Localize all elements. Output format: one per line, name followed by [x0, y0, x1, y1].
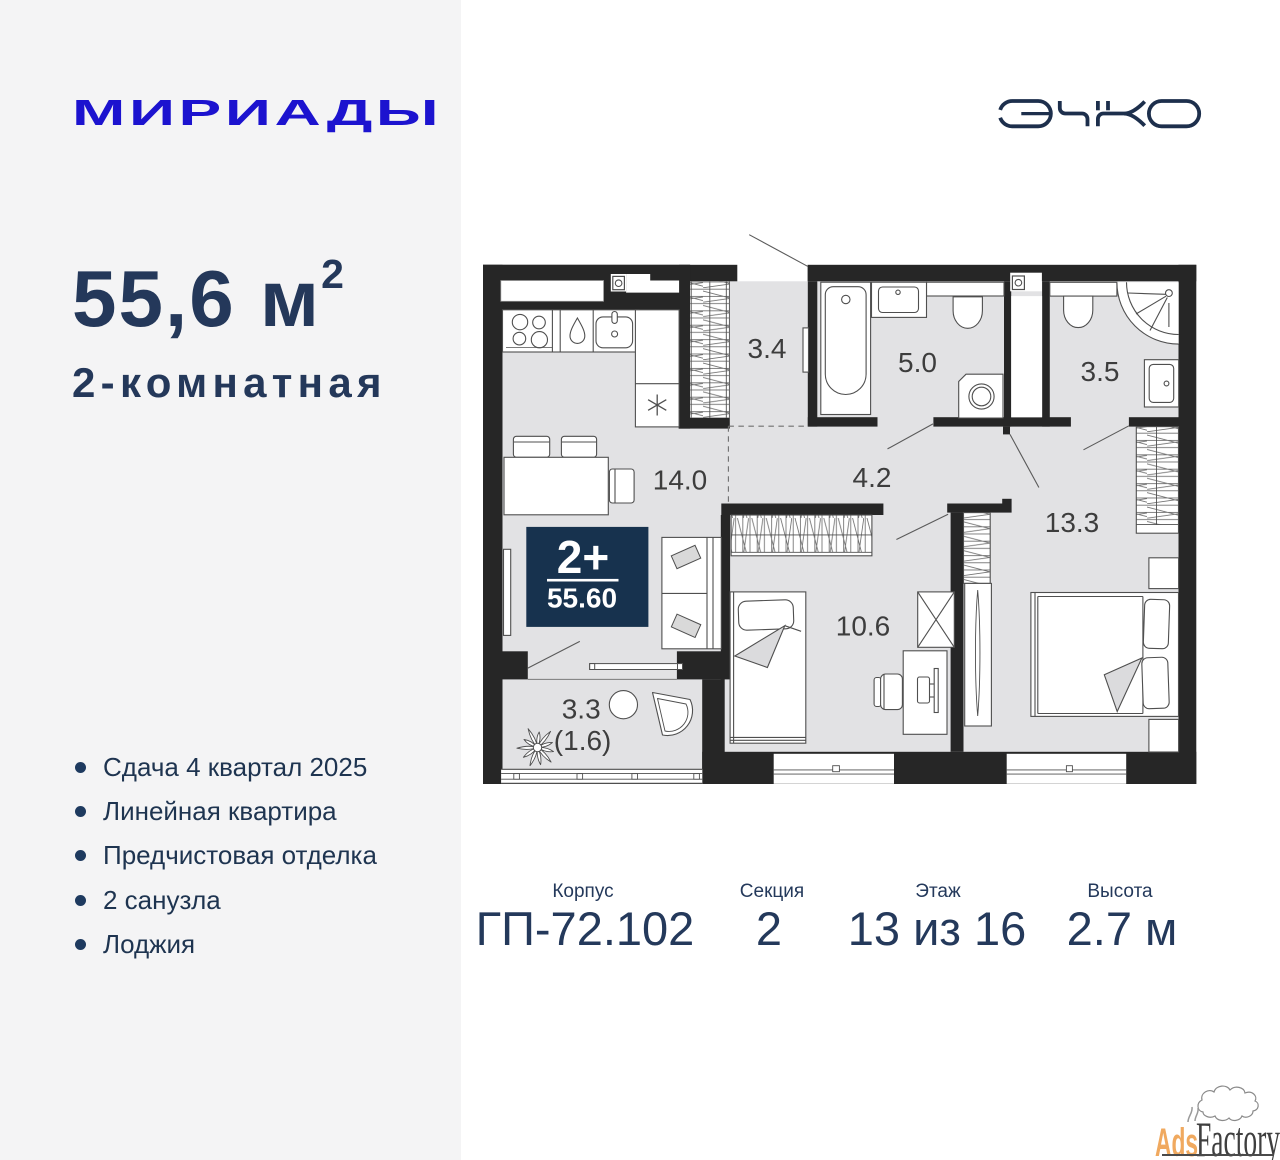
svg-text:14.0: 14.0 [653, 465, 708, 496]
svg-text:(1.6): (1.6) [554, 725, 612, 756]
svg-text:2+: 2+ [557, 531, 609, 583]
svg-text:Factory: Factory [1196, 1111, 1280, 1160]
svg-text:3.4: 3.4 [748, 333, 787, 364]
svg-text:5.0: 5.0 [898, 347, 937, 378]
svg-text:3.5: 3.5 [1081, 356, 1120, 387]
svg-text:13.3: 13.3 [1045, 507, 1100, 538]
svg-text:3.3: 3.3 [562, 694, 601, 725]
svg-text:4.2: 4.2 [853, 462, 892, 493]
svg-text:10.6: 10.6 [836, 611, 891, 642]
svg-text:55.60: 55.60 [547, 583, 617, 614]
